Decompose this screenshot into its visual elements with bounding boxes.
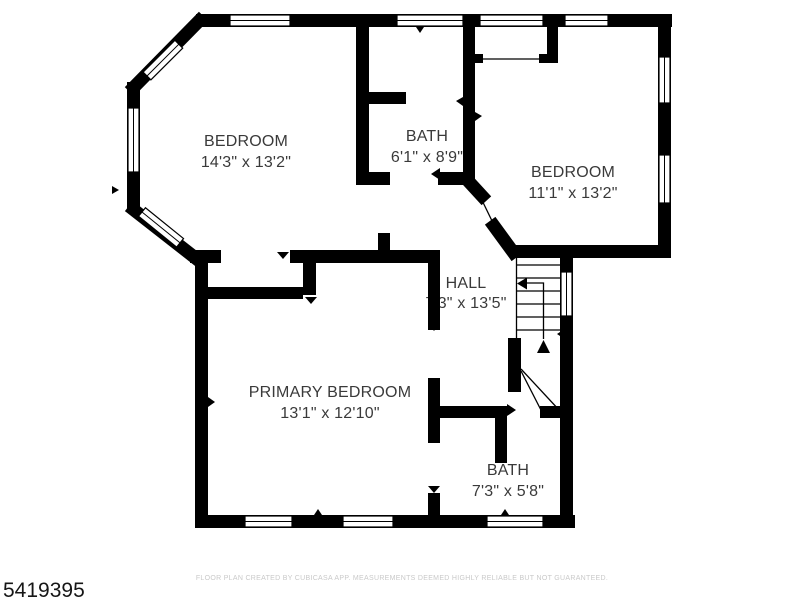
room-label-bath-1: BATH xyxy=(406,128,448,145)
windows xyxy=(128,15,670,527)
room-label-hall: HALL xyxy=(446,275,487,292)
interior-walls xyxy=(190,27,561,515)
window xyxy=(659,155,670,203)
room-dims-bedroom-1: 14'3" x 13'2" xyxy=(201,154,291,171)
window xyxy=(487,516,543,527)
window xyxy=(397,15,463,26)
window xyxy=(565,15,608,26)
window xyxy=(343,516,393,527)
room-dims-bath-1: 6'1" x 8'9" xyxy=(391,149,463,166)
window xyxy=(480,15,543,26)
room-dims-bath-2: 7'3" x 5'8" xyxy=(472,483,544,500)
floor-plan-page: BEDROOM 14'3" x 13'2" BATH 6'1" x 8'9" B… xyxy=(0,0,800,600)
window xyxy=(230,15,290,26)
exterior-walls xyxy=(127,14,672,528)
room-label-bath-2: BATH xyxy=(487,462,529,479)
stair-arrow-left xyxy=(517,278,527,290)
window xyxy=(128,108,139,172)
stair-arrow-up xyxy=(537,340,550,353)
window xyxy=(561,272,572,316)
window xyxy=(143,40,183,80)
room-dims-primary-bedroom: 13'1" x 12'10" xyxy=(280,405,379,422)
room-label-bedroom-2: BEDROOM xyxy=(531,164,615,181)
stairs xyxy=(508,252,560,414)
floorplan-svg: BEDROOM 14'3" x 13'2" BATH 6'1" x 8'9" B… xyxy=(0,0,800,600)
plan-id: 5419395 xyxy=(3,579,85,600)
window xyxy=(139,208,184,247)
room-dims-bedroom-2: 11'1" x 13'2" xyxy=(528,185,617,202)
window xyxy=(659,57,670,103)
room-label-primary-bedroom: PRIMARY BEDROOM xyxy=(249,384,411,401)
window xyxy=(245,516,292,527)
room-labels: BEDROOM 14'3" x 13'2" BATH 6'1" x 8'9" B… xyxy=(201,128,618,500)
room-label-bedroom-1: BEDROOM xyxy=(204,133,288,150)
footer-disclaimer: FLOOR PLAN CREATED BY CUBICASA APP. MEAS… xyxy=(196,575,608,582)
